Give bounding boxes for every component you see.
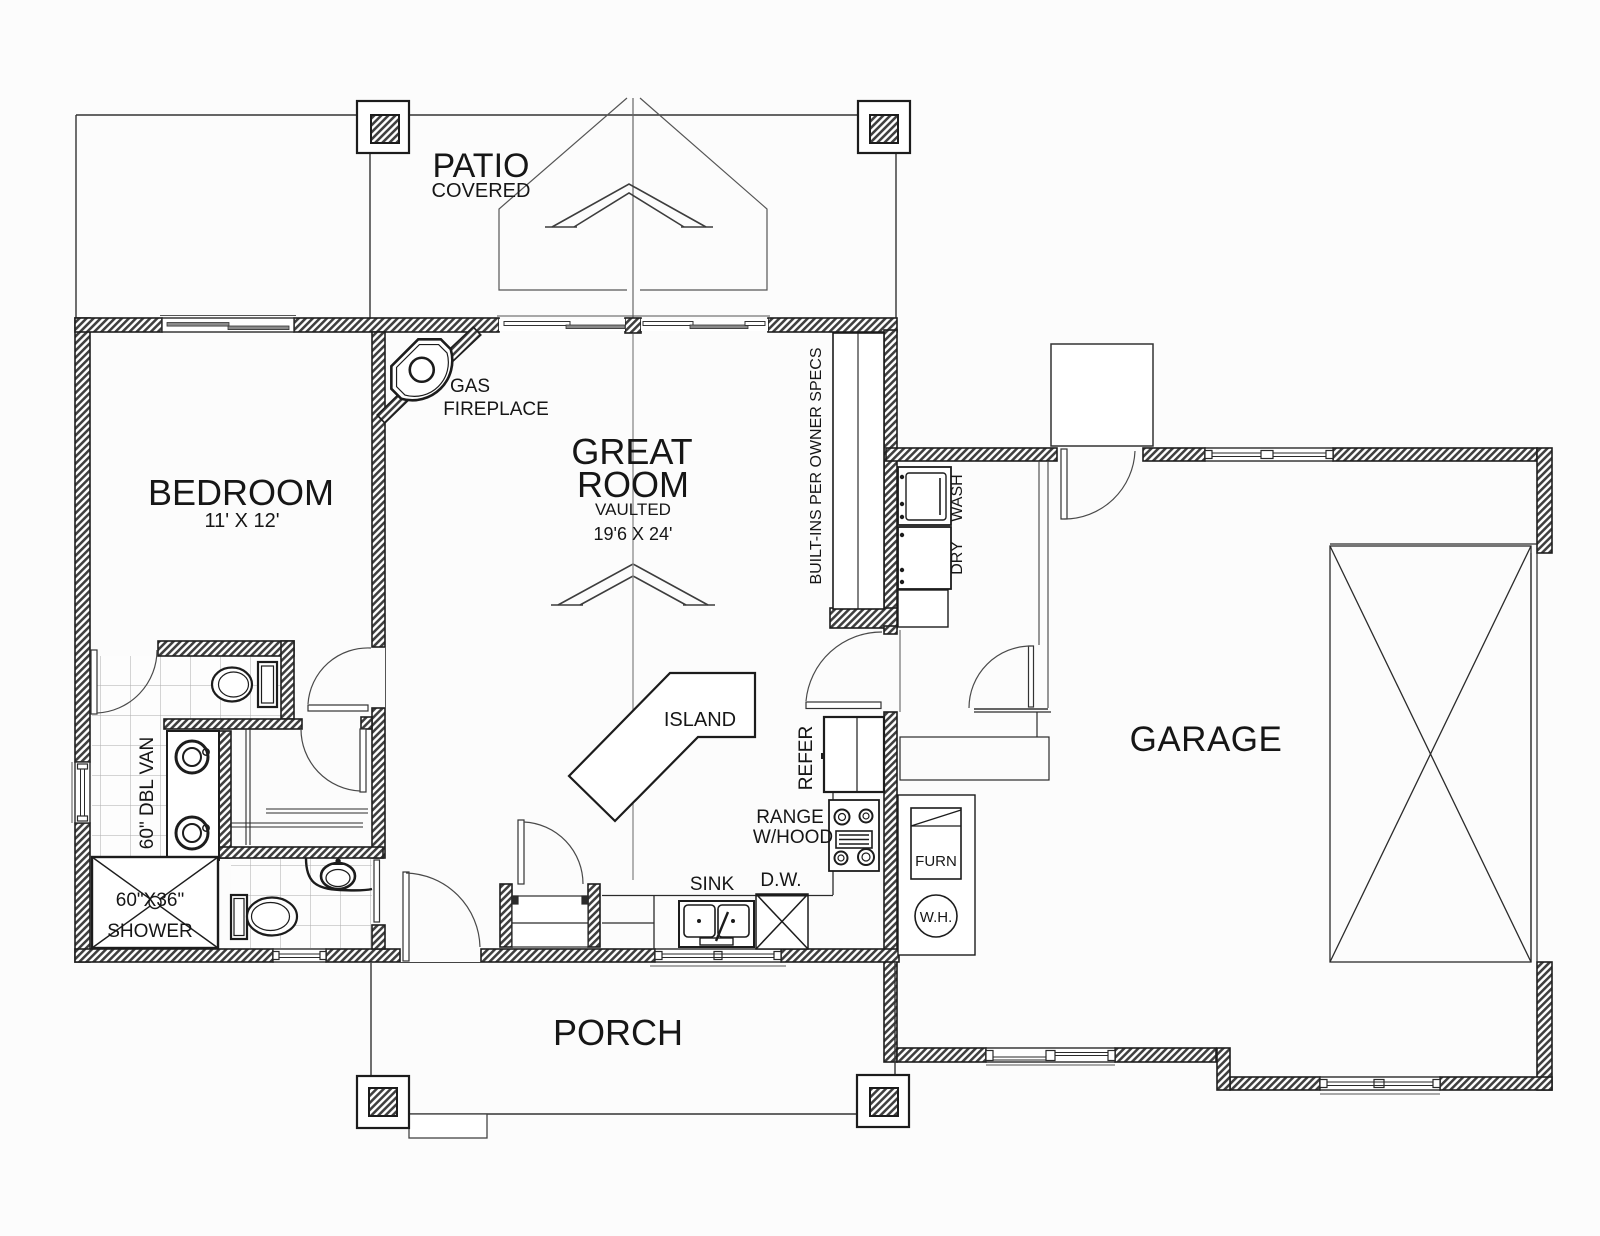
svg-text:BUILT-INS PER OWNER SPECS: BUILT-INS PER OWNER SPECS — [808, 347, 825, 584]
svg-text:GAS: GAS — [450, 376, 490, 397]
svg-text:60" DBL VAN: 60" DBL VAN — [137, 737, 158, 849]
svg-text:REFER: REFER — [796, 726, 817, 790]
svg-text:19'6 X 24': 19'6 X 24' — [594, 524, 673, 544]
svg-text:SINK: SINK — [690, 874, 735, 895]
svg-text:PORCH: PORCH — [553, 1012, 683, 1053]
svg-text:11' X 12': 11' X 12' — [204, 510, 279, 532]
svg-text:ROOM: ROOM — [577, 464, 689, 505]
svg-text:W.H.: W.H. — [920, 909, 953, 926]
svg-text:COVERED: COVERED — [432, 180, 531, 202]
svg-text:ISLAND: ISLAND — [664, 709, 736, 731]
svg-text:GARAGE: GARAGE — [1130, 720, 1283, 759]
svg-text:WASH: WASH — [949, 474, 966, 521]
svg-text:RANGE: RANGE — [756, 807, 824, 828]
svg-text:W/HOOD: W/HOOD — [753, 827, 833, 848]
svg-text:DRY: DRY — [949, 541, 966, 575]
svg-text:SHOWER: SHOWER — [107, 921, 193, 942]
svg-text:D.W.: D.W. — [760, 870, 801, 891]
svg-text:VAULTED: VAULTED — [595, 500, 671, 519]
svg-text:60"X36": 60"X36" — [116, 890, 184, 911]
svg-text:FIREPLACE: FIREPLACE — [443, 399, 549, 420]
svg-text:FURN: FURN — [915, 853, 957, 870]
svg-text:BEDROOM: BEDROOM — [148, 472, 334, 513]
